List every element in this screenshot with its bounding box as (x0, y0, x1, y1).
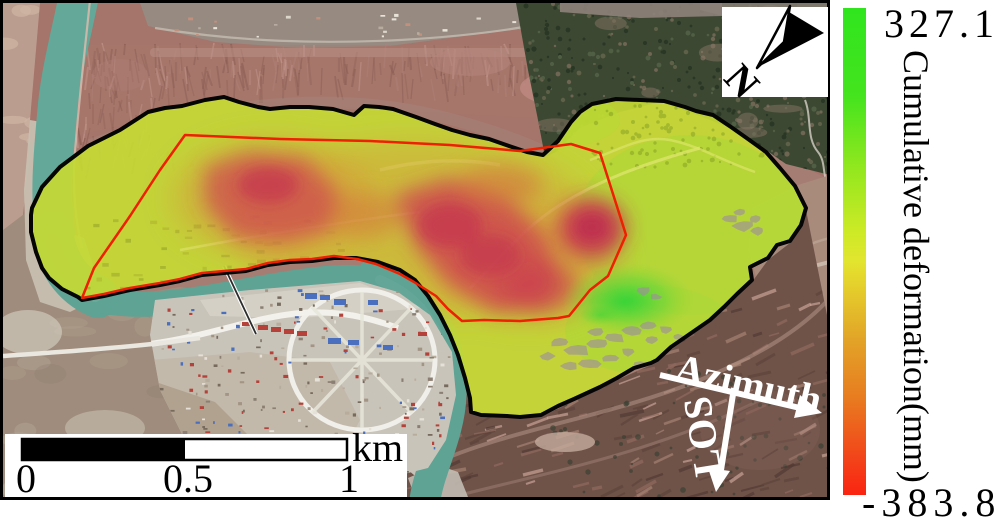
svg-text:Cumulative deformation(mm): Cumulative deformation(mm) (896, 50, 936, 483)
svg-text:-383.8: -383.8 (862, 480, 1000, 520)
svg-text:km: km (352, 425, 403, 470)
svg-text:0: 0 (16, 456, 36, 501)
svg-text:1: 1 (339, 456, 359, 501)
svg-text:327.1: 327.1 (884, 1, 999, 46)
svg-text:0.5: 0.5 (163, 456, 213, 501)
